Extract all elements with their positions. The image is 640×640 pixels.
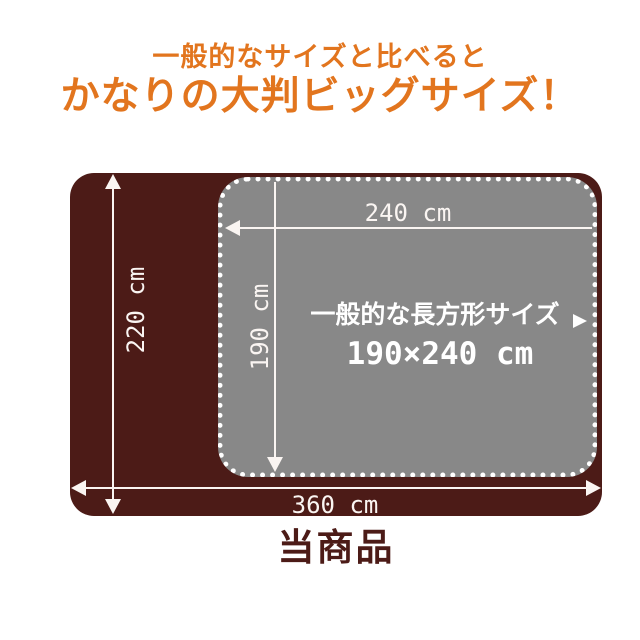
arrow-up-icon xyxy=(105,174,121,189)
product-width-label: 360 cm xyxy=(235,490,435,520)
product-height-label: 220 cm xyxy=(121,250,151,370)
size-comparison-infographic: 一般的なサイズと比べると かなりの大判ビッグサイズ！ 220 cm 360 cm… xyxy=(0,0,640,640)
header-subtitle: 一般的なサイズと比べると xyxy=(0,42,640,72)
dimension-line xyxy=(86,487,586,489)
right-triangle-icon xyxy=(573,314,587,328)
standard-width-label: 240 cm xyxy=(308,198,508,228)
arrow-down-icon xyxy=(105,499,121,514)
arrow-left-icon xyxy=(71,480,86,496)
dimension-line xyxy=(112,188,114,502)
arrow-left-icon xyxy=(225,220,240,236)
standard-size-title: 一般的な長方形サイズ xyxy=(265,301,605,329)
arrow-right-icon xyxy=(586,480,601,496)
header: 一般的なサイズと比べると かなりの大判ビッグサイズ！ xyxy=(0,42,640,118)
product-caption: 当商品 xyxy=(186,527,486,569)
header-title: かなりの大判ビッグサイズ！ xyxy=(0,76,640,118)
arrow-down-icon xyxy=(267,457,283,472)
standard-size-value: 190×240 cm xyxy=(270,337,610,371)
